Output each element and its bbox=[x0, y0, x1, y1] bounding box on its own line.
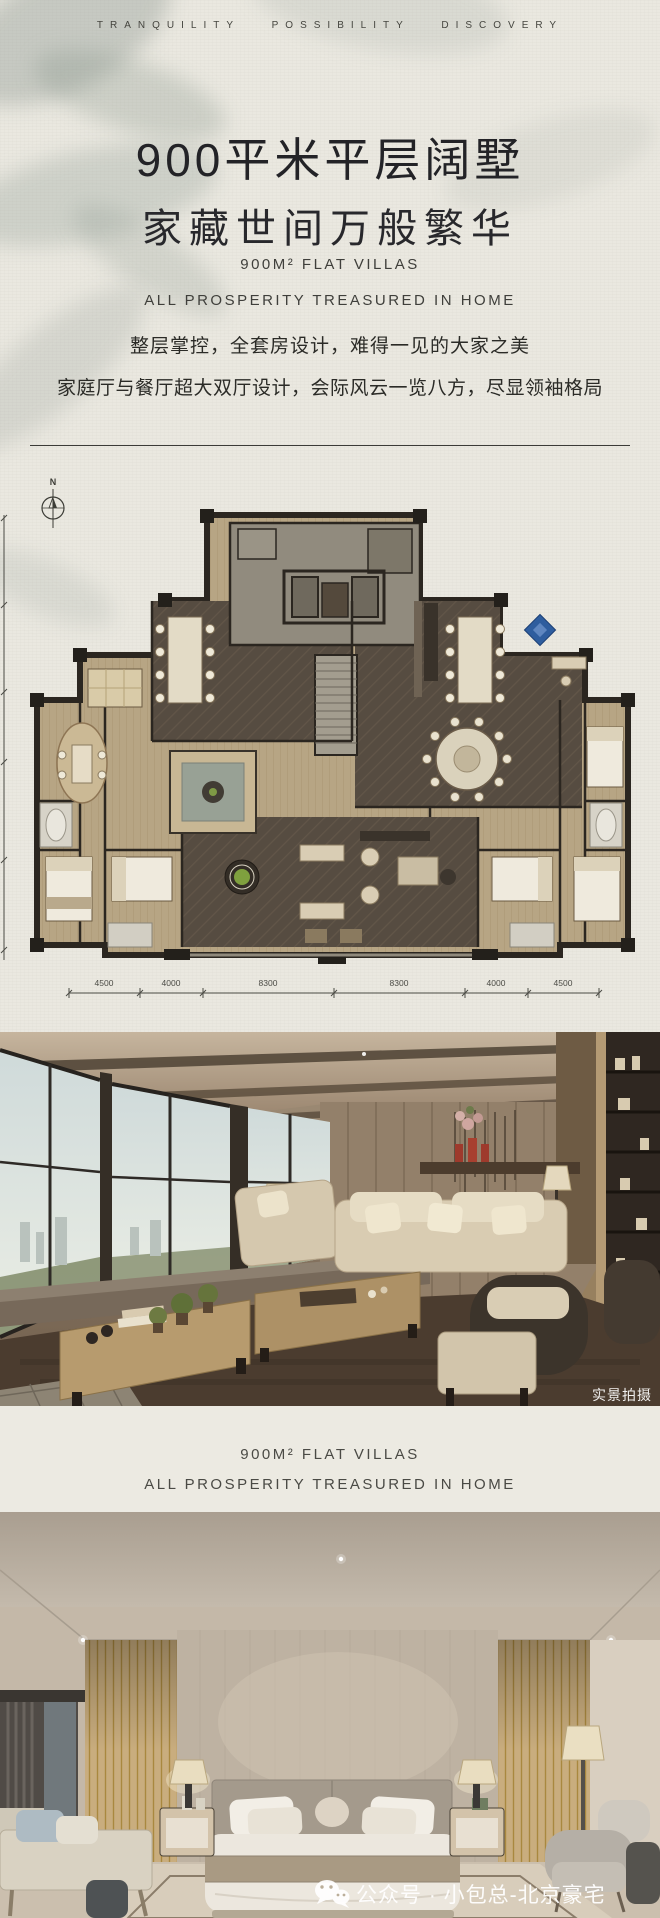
floorplan-bed-right-mid bbox=[587, 727, 623, 787]
floorplan-oval-lounge bbox=[57, 723, 107, 803]
leaf-shadow bbox=[244, 0, 516, 72]
floorplan-blue-rug bbox=[524, 614, 555, 645]
dim-label-6: 4500 bbox=[554, 978, 573, 988]
dim-label-1: 4500 bbox=[95, 978, 114, 988]
poster-page: TRANQUILITY POSSIBILITY DISCOVERY 900平米平… bbox=[0, 0, 660, 1918]
dim-label-4: 8300 bbox=[390, 978, 409, 988]
body-text-line1: 整层掌控，全套房设计，难得一见的大家之美 bbox=[0, 331, 660, 358]
mid-subtitle-line2: ALL PROSPERITY TREASURED IN HOME bbox=[0, 1476, 660, 1493]
horizontal-divider bbox=[30, 445, 630, 446]
living-room-photo: 实景拍摄 bbox=[0, 1032, 660, 1406]
bedroom-window-left bbox=[0, 1690, 85, 1827]
floor-plan: 4500 4000 8300 8300 4000 4500 bbox=[0, 505, 660, 1010]
header-tagline: TRANQUILITY POSSIBILITY DISCOVERY bbox=[0, 20, 660, 31]
title-chinese-line1: 900平米平层阔墅 bbox=[0, 124, 660, 190]
dim-label-5: 4000 bbox=[487, 978, 506, 988]
compass-north-label: N bbox=[50, 477, 57, 487]
floorplan-tatami-room bbox=[88, 669, 142, 707]
dim-label-3: 8300 bbox=[259, 978, 278, 988]
floorplan-left-dimension-line bbox=[1, 515, 7, 960]
dim-label-2: 4000 bbox=[162, 978, 181, 988]
floorplan-dimension-line bbox=[66, 988, 602, 998]
mid-subtitle-band: 900M² FLAT VILLAS ALL PROSPERITY TREASUR… bbox=[0, 1406, 660, 1512]
floorplan-family-room bbox=[170, 751, 256, 833]
subtitle-english-line1: 900M² FLAT VILLAS bbox=[0, 256, 660, 273]
mid-subtitle-line1: 900M² FLAT VILLAS bbox=[0, 1446, 660, 1463]
floorplan-bed-far-left bbox=[46, 857, 92, 921]
floorplan-bed-left-bottom bbox=[112, 857, 172, 901]
bedroom-ceiling bbox=[0, 1512, 660, 1607]
floorplan-bed-far-right bbox=[574, 857, 620, 921]
subtitle-english-line2: ALL PROSPERITY TREASURED IN HOME bbox=[0, 292, 660, 309]
body-text-line2: 家庭厅与餐厅超大双厅设计，会际风云一览八方，尽显领袖格局 bbox=[0, 373, 660, 400]
bedroom-watermark: 公众号 · 小包总-北京豪宅 bbox=[315, 1880, 606, 1908]
living-photo-watermark: 实景拍摄 bbox=[592, 1387, 652, 1403]
bedroom-watermark-text: 公众号 · 小包总-北京豪宅 bbox=[356, 1884, 606, 1907]
floorplan-dimension-labels: 4500 4000 8300 8300 4000 4500 bbox=[95, 978, 573, 988]
living-sofa-group bbox=[234, 1179, 567, 1272]
floorplan-bed-right-bottom bbox=[492, 857, 552, 901]
title-chinese-line2: 家藏世间万般繁华 bbox=[0, 196, 660, 254]
bedroom-photo: 公众号 · 小包总-北京豪宅 bbox=[0, 1512, 660, 1918]
